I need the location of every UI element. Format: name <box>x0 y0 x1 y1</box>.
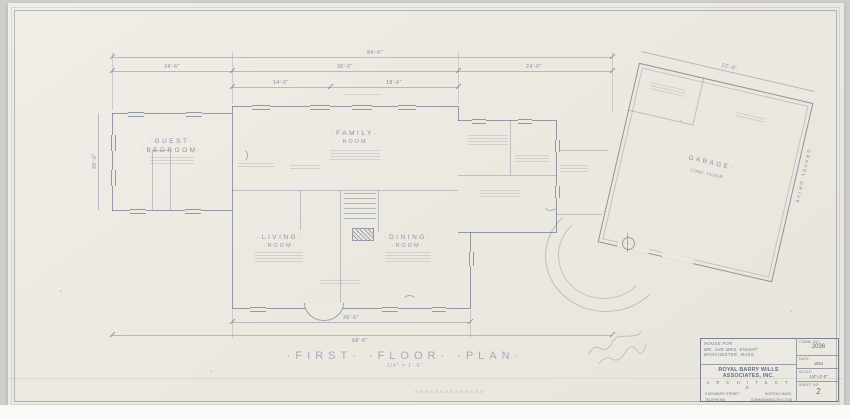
window-symbol <box>555 186 560 198</box>
window-symbol <box>352 105 372 110</box>
window-symbol <box>186 112 202 117</box>
pencil-notes <box>320 280 360 286</box>
dimension-label: 26'-0" <box>92 153 98 169</box>
title-block-comm: COMM. NO. 2036 <box>797 339 838 356</box>
dimension-label: 14'-0" <box>273 80 289 86</box>
scan-backing-strip <box>0 405 850 419</box>
dimension-label: 18'-6" <box>386 80 402 86</box>
pencil-notes <box>330 150 380 162</box>
partition <box>378 190 379 232</box>
dimension-line <box>112 57 612 58</box>
pencil-notes <box>560 165 588 174</box>
title-block-sheet: SHEET NO. 2 <box>797 382 838 401</box>
pencil-notes <box>290 165 320 171</box>
window-symbol <box>518 119 532 124</box>
project-line-3: MANCHESTER, MASS. <box>704 352 796 358</box>
door-swing <box>402 295 417 310</box>
extension-line <box>470 310 471 338</box>
dimension-line <box>112 335 612 336</box>
dimension-label: 24'-0" <box>526 64 542 70</box>
title-block-date: DATE 1954 <box>797 356 838 369</box>
window-symbol <box>472 119 486 124</box>
pencil-notes <box>385 252 431 264</box>
date-value: 1954 <box>799 361 838 366</box>
window-symbol <box>130 209 146 214</box>
window-symbol <box>250 307 266 312</box>
wall-segment <box>556 120 557 233</box>
wall-segment <box>470 232 471 309</box>
room-label-guest: ·GUEST· <box>150 138 194 145</box>
title-block-project: HOUSE FOR MR. AND MRS. KNIGHT MANCHESTER… <box>701 339 797 365</box>
window-symbol <box>555 140 560 152</box>
wall-segment <box>232 106 233 309</box>
partition <box>232 190 458 191</box>
scanned-blueprint-sheet: 84'-6" 24'-6" 36'-0" 24'-0" 14'-0" 18'-6… <box>0 0 850 419</box>
room-label-living: ·LIVING· <box>257 234 303 241</box>
dimension-label: 24'-6" <box>164 64 180 70</box>
firm-address-right: BOSTON, MASS. <box>765 392 792 396</box>
window-symbol <box>382 307 398 312</box>
extension-line <box>232 52 233 104</box>
comm-no-value: 2036 <box>799 344 838 350</box>
dimension-label: 84'-6" <box>367 50 383 56</box>
title-block-scale: SCALE 1/4"=1'-0" <box>797 369 838 382</box>
title-block: HOUSE FOR MR. AND MRS. KNIGHT MANCHESTER… <box>700 338 839 402</box>
door-swing <box>233 148 248 163</box>
pencil-notes <box>150 157 194 166</box>
pencil-notes <box>345 94 381 97</box>
north-arrow-line <box>627 233 628 252</box>
window-symbol <box>310 105 330 110</box>
firm-subtitle: A R C H I T E C T S <box>702 380 795 390</box>
paper-crease <box>8 378 844 379</box>
partition <box>300 190 301 230</box>
room-label-family: ·FAMILY· <box>332 130 379 137</box>
firm-address-row-2: TELEPHONE COMMONWEALTH 6-2748 <box>702 398 795 402</box>
firm-address-row-1: 8 NEWBURY STREET BOSTON, MASS. <box>702 392 795 396</box>
dimension-label: 36'-0" <box>337 64 353 70</box>
paper-speck <box>680 120 682 122</box>
firm-address-left: 8 NEWBURY STREET <box>705 392 739 396</box>
curved-wall <box>558 212 650 299</box>
sheet-no-value: 2 <box>799 387 838 396</box>
pencil-notes <box>468 135 508 147</box>
room-label-living-2: ·ROOM· <box>264 243 297 249</box>
dimension-label: 36'-6" <box>343 315 359 321</box>
wall-segment <box>458 106 459 121</box>
wall-segment <box>458 232 556 233</box>
dimension-label: 68'-6" <box>352 338 368 344</box>
window-symbol <box>398 105 416 110</box>
room-label-dining: ·DINING· <box>384 234 431 241</box>
partition <box>458 175 556 176</box>
dimension-line <box>112 71 612 72</box>
room-label-guest-2: ·BEDROOM· <box>142 147 202 154</box>
window-symbol <box>185 209 201 214</box>
paper-speck <box>210 370 212 372</box>
revision-stamp-faint <box>415 390 485 393</box>
dimension-line <box>232 322 470 323</box>
sheet-title: ·FIRST· ·FLOOR· ·PLAN· <box>287 350 524 362</box>
window-symbol <box>469 252 474 266</box>
north-arrow-icon <box>622 237 635 250</box>
door-swing <box>543 196 558 211</box>
window-symbol <box>128 112 144 117</box>
window-symbol <box>252 105 270 110</box>
window-symbol <box>111 170 116 186</box>
extension-line <box>232 310 233 338</box>
pencil-notes <box>255 252 303 264</box>
pencil-notes <box>515 155 549 164</box>
fireplace-symbol <box>352 228 374 241</box>
partition <box>340 190 341 308</box>
paper-speck <box>60 290 62 292</box>
pencil-notes <box>480 190 520 199</box>
dimension-line <box>98 113 99 210</box>
dimension-line <box>232 87 458 88</box>
room-label-dining-2: ·ROOM· <box>392 243 425 249</box>
extension-line <box>458 52 459 104</box>
breezeway-wall <box>556 150 608 151</box>
wall-segment <box>112 113 113 211</box>
stair-symbol <box>344 193 376 219</box>
extension-line <box>112 52 113 110</box>
firm-phone-right: COMMONWEALTH 6-2748 <box>751 398 792 402</box>
firm-phone-left: TELEPHONE <box>705 398 726 402</box>
extension-line <box>612 52 613 112</box>
partition <box>510 120 511 175</box>
paper-speck <box>790 310 792 312</box>
window-symbol <box>432 307 446 312</box>
sheet-title-scale: ·1/4" = 1'-0"· <box>384 363 426 369</box>
title-block-firm: ROYAL BARRY WILLS ASSOCIATES, INC. A R C… <box>701 365 797 401</box>
window-symbol <box>111 135 116 151</box>
room-label-family-2: ·ROOM· <box>339 139 372 145</box>
pencil-notes <box>238 163 274 169</box>
